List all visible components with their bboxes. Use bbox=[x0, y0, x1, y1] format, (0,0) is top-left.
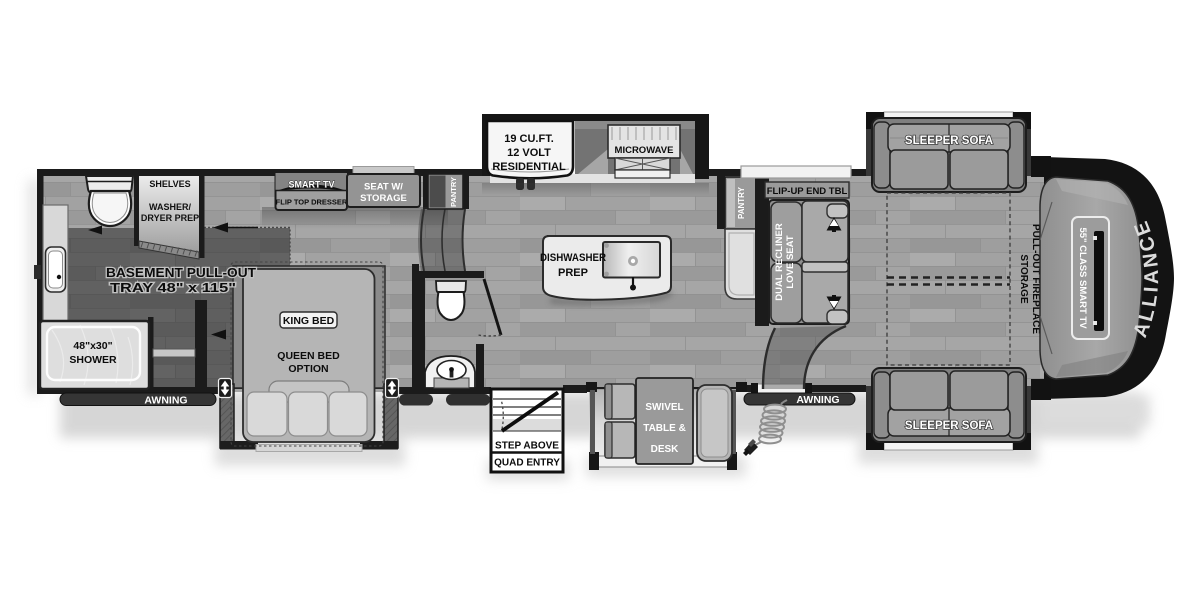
svg-text:48"x30": 48"x30" bbox=[73, 340, 112, 352]
svg-text:WASHER/: WASHER/ bbox=[149, 202, 192, 212]
svg-text:SWIVEL: SWIVEL bbox=[645, 402, 683, 413]
svg-text:SMART TV: SMART TV bbox=[289, 180, 335, 190]
svg-text:RESIDENTIAL: RESIDENTIAL bbox=[492, 161, 566, 173]
svg-text:FLIP-UP END TBL: FLIP-UP END TBL bbox=[767, 186, 848, 197]
svg-text:OPTION: OPTION bbox=[288, 363, 328, 375]
svg-text:STORAGE: STORAGE bbox=[360, 193, 407, 204]
svg-text:AWNING: AWNING bbox=[144, 395, 187, 407]
svg-text:DESK: DESK bbox=[651, 444, 680, 455]
svg-text:DRYER PREP: DRYER PREP bbox=[141, 213, 199, 223]
svg-text:SLEEPER SOFA: SLEEPER SOFA bbox=[905, 420, 993, 432]
svg-text:DUAL RECLINER: DUAL RECLINER bbox=[774, 223, 785, 301]
svg-text:BASEMENT PULL-OUT: BASEMENT PULL-OUT bbox=[106, 266, 256, 280]
svg-text:STORAGE: STORAGE bbox=[1018, 254, 1029, 304]
svg-text:QUAD ENTRY: QUAD ENTRY bbox=[494, 458, 560, 469]
svg-text:12 VOLT: 12 VOLT bbox=[507, 147, 551, 159]
svg-text:STEP ABOVE: STEP ABOVE bbox=[495, 441, 559, 452]
svg-text:LOVE SEAT: LOVE SEAT bbox=[785, 235, 796, 288]
svg-text:MICROWAVE: MICROWAVE bbox=[615, 145, 674, 156]
svg-text:PREP: PREP bbox=[558, 267, 588, 279]
svg-text:19 CU.FT.: 19 CU.FT. bbox=[504, 133, 554, 145]
svg-text:TABLE &: TABLE & bbox=[643, 423, 686, 434]
svg-text:PANTRY: PANTRY bbox=[449, 177, 458, 207]
svg-text:SHELVES: SHELVES bbox=[149, 179, 190, 189]
svg-text:TRAY 48" x 115": TRAY 48" x 115" bbox=[110, 281, 236, 295]
svg-text:SLEEPER SOFA: SLEEPER SOFA bbox=[905, 135, 993, 147]
svg-text:KING BED: KING BED bbox=[283, 315, 335, 327]
svg-text:55" CLASS SMART TV: 55" CLASS SMART TV bbox=[1077, 227, 1088, 329]
svg-text:SHOWER: SHOWER bbox=[69, 354, 117, 366]
svg-text:AWNING: AWNING bbox=[796, 394, 839, 406]
svg-text:QUEEN BED: QUEEN BED bbox=[277, 350, 340, 362]
svg-text:FLIP TOP DRESSER: FLIP TOP DRESSER bbox=[276, 198, 348, 207]
svg-text:SEAT W/: SEAT W/ bbox=[364, 182, 403, 193]
svg-text:DISHWASHER: DISHWASHER bbox=[540, 252, 606, 264]
svg-text:PANTRY: PANTRY bbox=[737, 186, 746, 219]
